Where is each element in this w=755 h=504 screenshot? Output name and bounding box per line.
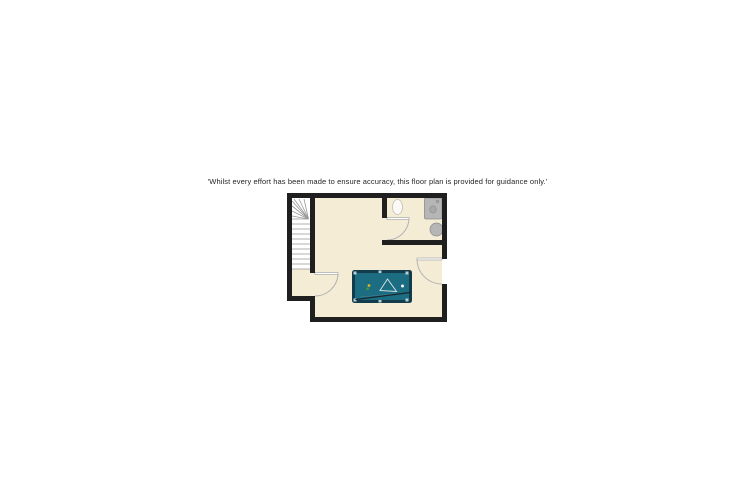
wall-right-upper	[442, 193, 447, 259]
bathroom-door-leaf	[387, 218, 409, 220]
toilet-icon	[393, 200, 403, 215]
green-ball-icon	[366, 287, 369, 290]
wall-right-lower	[442, 284, 447, 322]
wall-bottom	[310, 317, 447, 322]
wall-stair-left	[287, 193, 292, 301]
pool-table-icon	[352, 270, 412, 303]
floor-plan	[287, 193, 447, 322]
wall-bathroom-bottom	[382, 240, 447, 245]
entrance-door-leaf	[417, 258, 442, 260]
vanity-bowl-icon	[430, 206, 436, 213]
pocket-icon	[406, 299, 409, 302]
pocket-icon	[379, 271, 382, 274]
floor-plan-drawing	[287, 193, 447, 322]
pocket-icon	[406, 272, 409, 275]
tap-icon	[436, 200, 439, 203]
yellow-ball-icon	[368, 284, 371, 287]
disclaimer-text: 'Whilst every effort has been made to en…	[0, 177, 755, 186]
staircase-icon	[292, 198, 310, 269]
wall-bathroom-left	[382, 193, 387, 218]
stair-door-leaf	[315, 273, 338, 275]
pocket-icon	[354, 272, 357, 275]
wall-divider-upper	[310, 193, 315, 273]
cue-ball-icon	[401, 285, 404, 288]
wash-basin-icon	[430, 223, 443, 236]
pocket-icon	[379, 300, 382, 303]
